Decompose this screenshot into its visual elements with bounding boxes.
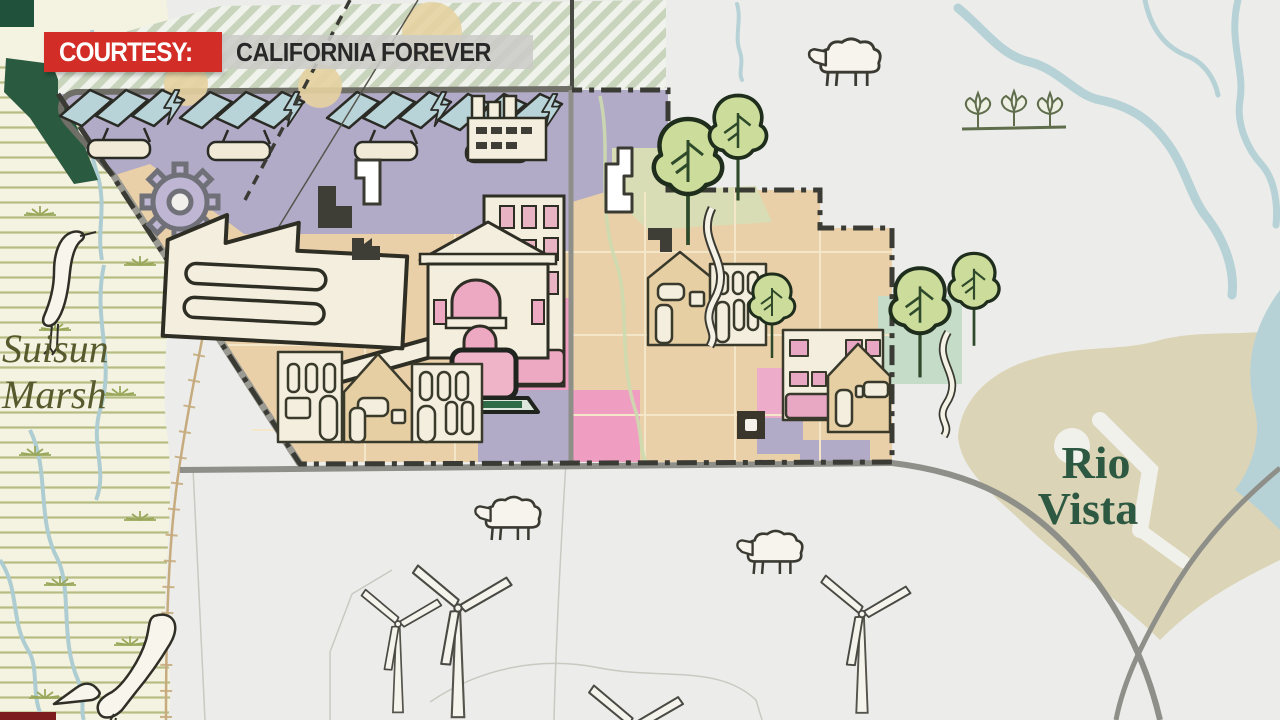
courtesy-label: COURTESY: [59,37,192,68]
suisun-marsh-label: Suisun [2,326,109,371]
rowhouses-icon [278,352,482,442]
source-name: CALIFORNIA FOREVER [236,37,491,68]
school-marker-icon [737,411,765,439]
rio-vista-label: Rio [1062,437,1131,488]
lower-third-strip [0,712,56,720]
crops-icon [962,91,1066,129]
suisun-marsh-label: Marsh [1,372,106,417]
apartment-icon [783,330,890,432]
planned-community-map: Suisun Marsh Rio Vista [0,0,1280,720]
broadcast-frame: Suisun Marsh Rio Vista COURTESY: CALIFOR… [0,0,1280,720]
dark-green-patch [0,0,34,27]
courtesy-banner: COURTESY: CALIFORNIA FOREVER [44,32,533,72]
lavender-patch [800,440,870,462]
mixed-use-pink-zone [572,390,640,462]
rio-vista-label: Vista [1038,483,1139,534]
source-tag: CALIFORNIA FOREVER [222,35,533,69]
courtesy-tag: COURTESY: [44,32,222,72]
